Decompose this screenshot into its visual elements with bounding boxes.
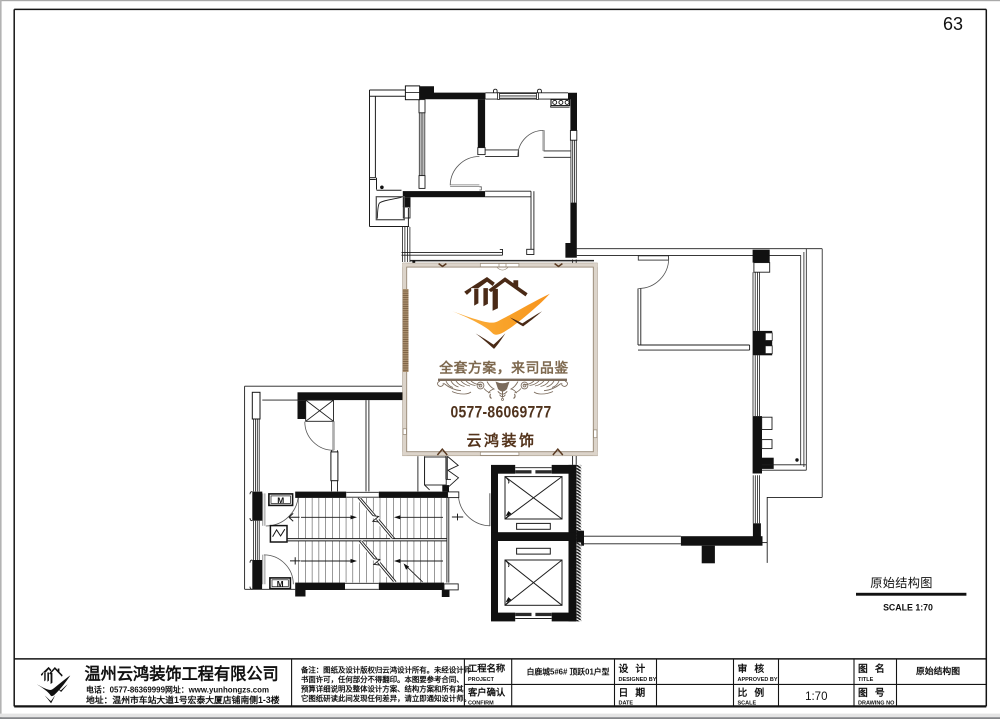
- svg-text:日 期: 日 期: [619, 686, 648, 699]
- svg-text:DRAWING NO: DRAWING NO: [858, 701, 895, 707]
- svg-text:温州云鸿装饰工程有限公司: 温州云鸿装饰工程有限公司: [84, 665, 279, 684]
- svg-text:全套方案，来司品鉴: 全套方案，来司品鉴: [438, 360, 569, 376]
- svg-text:白鹿城5#6# 顶跃01户型: 白鹿城5#6# 顶跃01户型: [527, 666, 610, 676]
- svg-text:比 例: 比 例: [738, 686, 767, 699]
- svg-text:1:70: 1:70: [805, 691, 827, 703]
- svg-text:图 名: 图 名: [858, 662, 887, 675]
- svg-text:原始结构图: 原始结构图: [870, 575, 932, 590]
- svg-text:工程名称: 工程名称: [468, 663, 506, 674]
- svg-text:设 计: 设 计: [619, 662, 648, 675]
- svg-text:DESIGNED BY: DESIGNED BY: [619, 677, 657, 683]
- svg-text:电话：0577-86369999网址：www.yunhong: 电话：0577-86369999网址：www.yunhongzs.com: [86, 685, 269, 695]
- svg-text:APPROVED BY: APPROVED BY: [738, 677, 778, 683]
- svg-text:云鸿装饰: 云鸿装饰: [466, 432, 536, 450]
- svg-text:备注：图纸及设计版权归云鸿设计所有。未经设计师: 备注：图纸及设计版权归云鸿设计所有。未经设计师: [300, 666, 472, 675]
- svg-text:PROJECT: PROJECT: [468, 677, 495, 683]
- svg-text:地址：温州市车站大道1号宏泰大厦店铺南侧1-3楼: 地址：温州市车站大道1号宏泰大厦店铺南侧1-3楼: [86, 694, 280, 705]
- svg-text:书面许可，任何部分不得翻印。本图要参考合同、: 书面许可，任何部分不得翻印。本图要参考合同、: [301, 675, 464, 684]
- svg-text:CONFIRM: CONFIRM: [468, 701, 494, 707]
- svg-text:M: M: [277, 580, 284, 589]
- svg-text:0577-86069777: 0577-86069777: [450, 403, 551, 422]
- svg-text:TITLE: TITLE: [858, 677, 874, 683]
- svg-text:客户确认: 客户确认: [467, 687, 506, 698]
- svg-text:它图纸研读此间发现任何差异，请立即通知设计师。: 它图纸研读此间发现任何差异，请立即通知设计师。: [301, 694, 471, 703]
- svg-text:预算详细说明及整体设计方案、结构方案和所有其: 预算详细说明及整体设计方案、结构方案和所有其: [301, 685, 464, 694]
- svg-text:DATE: DATE: [619, 701, 634, 707]
- svg-text:原始结构图: 原始结构图: [916, 665, 960, 676]
- svg-text:SCALE 1:70: SCALE 1:70: [883, 603, 933, 613]
- svg-text:审 核: 审 核: [738, 662, 767, 675]
- svg-text:SCALE: SCALE: [738, 701, 757, 707]
- svg-text:M: M: [277, 495, 284, 505]
- svg-text:63: 63: [943, 14, 963, 34]
- svg-text:图 号: 图 号: [858, 687, 887, 699]
